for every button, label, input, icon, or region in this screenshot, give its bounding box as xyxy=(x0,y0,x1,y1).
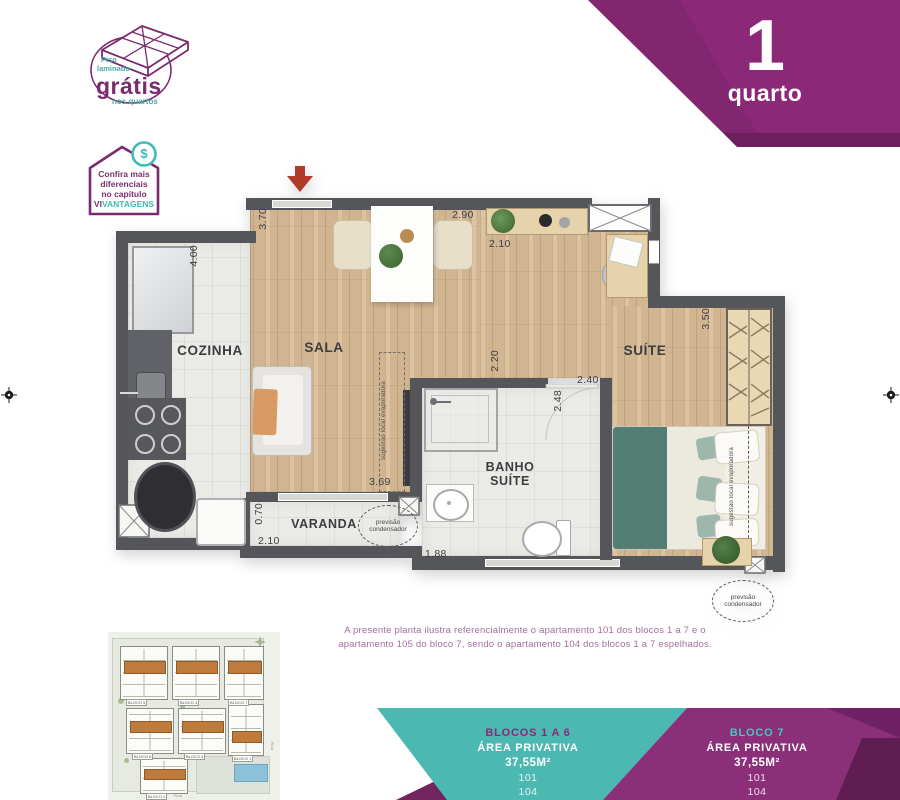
dim-sala-height: 3.70 xyxy=(257,208,269,230)
bowl-icon xyxy=(539,214,552,227)
desk-icon xyxy=(606,234,648,298)
bowl-icon xyxy=(400,229,414,243)
wall xyxy=(116,231,128,550)
footer-left-unit: 101 xyxy=(428,772,628,784)
brochure-page: Piso laminado grátis nos quartos $ Confi… xyxy=(0,0,900,800)
room-label-banho: BANHO SUÍTE xyxy=(470,460,550,488)
condenser-note-varanda: previsão condensador xyxy=(358,505,418,547)
dim-banho-height: 2.48 xyxy=(552,390,564,412)
room-label-sala: SALA xyxy=(284,340,364,355)
room-label-varanda: VARANDA xyxy=(284,517,364,531)
dim-sala-bottom: 3.69 xyxy=(369,476,391,488)
dim-banho-bottom: 1.88 xyxy=(425,548,447,560)
chair-icon xyxy=(333,220,373,270)
wall xyxy=(773,296,785,572)
sideboard-icon xyxy=(486,208,588,235)
washbasin-icon xyxy=(426,484,474,522)
dim-suite-height: 3.50 xyxy=(700,308,712,330)
dim-sala-width: 2.90 xyxy=(452,209,474,221)
dim-varanda-height: 0.70 xyxy=(253,503,265,525)
laundry-tub-icon xyxy=(134,462,196,532)
varanda-sliding-door xyxy=(278,493,388,501)
dining-table-icon xyxy=(371,206,433,302)
laptop-icon xyxy=(608,236,643,268)
dim-hall-width: 2.10 xyxy=(489,238,511,250)
entrance-arrow-icon xyxy=(286,166,314,192)
toilet-icon xyxy=(522,518,570,556)
reference-note: A presente planta ilustra referencialmen… xyxy=(330,624,720,652)
throw-blanket-icon xyxy=(252,389,278,436)
site-block xyxy=(172,646,220,700)
wall xyxy=(648,296,785,308)
window-box-icon xyxy=(588,204,652,232)
footer-right-area-label: ÁREA PRIVATIVA xyxy=(657,742,857,754)
faucet-icon xyxy=(120,392,138,394)
wall xyxy=(116,231,256,243)
stove-icon xyxy=(128,398,186,460)
footer-right-title: BLOCO 7 xyxy=(657,727,857,739)
dim-varanda-width: 2.10 xyxy=(258,535,280,547)
footer-right-unit: 101 xyxy=(657,772,857,784)
condenser-note-suite: previsão condensador xyxy=(712,580,774,622)
ornament-icon xyxy=(559,217,570,228)
stool-icon xyxy=(196,498,246,546)
footer-left-area-label: ÁREA PRIVATIVA xyxy=(428,742,628,754)
footer-right-column: BLOCO 7 ÁREA PRIVATIVA 37,55M² 101 104 xyxy=(657,727,857,800)
dim-banho-width: 2.40 xyxy=(577,374,599,386)
wall xyxy=(240,546,422,558)
evaporator-suggestion-line xyxy=(748,426,749,548)
chair-icon xyxy=(433,220,473,270)
wall xyxy=(410,378,422,502)
wardrobe-icon xyxy=(726,308,772,426)
bed-blanket xyxy=(613,427,667,549)
footer-left-title: BLOCOS 1 A 6 xyxy=(428,727,628,739)
plant-icon xyxy=(379,244,403,268)
site-block xyxy=(224,646,264,700)
dim-banho-door: 2.20 xyxy=(489,350,501,372)
plant-icon xyxy=(712,536,740,564)
footer-right-unit: 104 xyxy=(657,786,857,798)
plant-icon xyxy=(491,209,515,233)
room-label-suite: SUÍTE xyxy=(605,343,685,358)
fridge-icon xyxy=(132,246,194,334)
footer-right-area-value: 37,55M² xyxy=(657,757,857,769)
armchair-icon xyxy=(252,366,312,456)
footer-left-column: BLOCOS 1 A 6 ÁREA PRIVATIVA 37,55M² 101 … xyxy=(428,727,628,800)
room-label-cozinha: COZINHA xyxy=(160,343,260,358)
dim-cozinha-height: 4.00 xyxy=(188,245,200,267)
suite-window xyxy=(485,559,620,567)
entrance-door xyxy=(272,200,332,208)
wall xyxy=(410,378,548,388)
footer-left-area-value: 37,55M² xyxy=(428,757,628,769)
evaporator-suggestion-label: sugestão local evaporadora xyxy=(729,432,747,542)
window xyxy=(649,240,659,264)
evaporator-suggestion-label: sugestão local evaporadora xyxy=(381,360,401,482)
footer-left-unit: 104 xyxy=(428,786,628,798)
site-block xyxy=(120,646,168,700)
shower-icon xyxy=(424,388,498,452)
